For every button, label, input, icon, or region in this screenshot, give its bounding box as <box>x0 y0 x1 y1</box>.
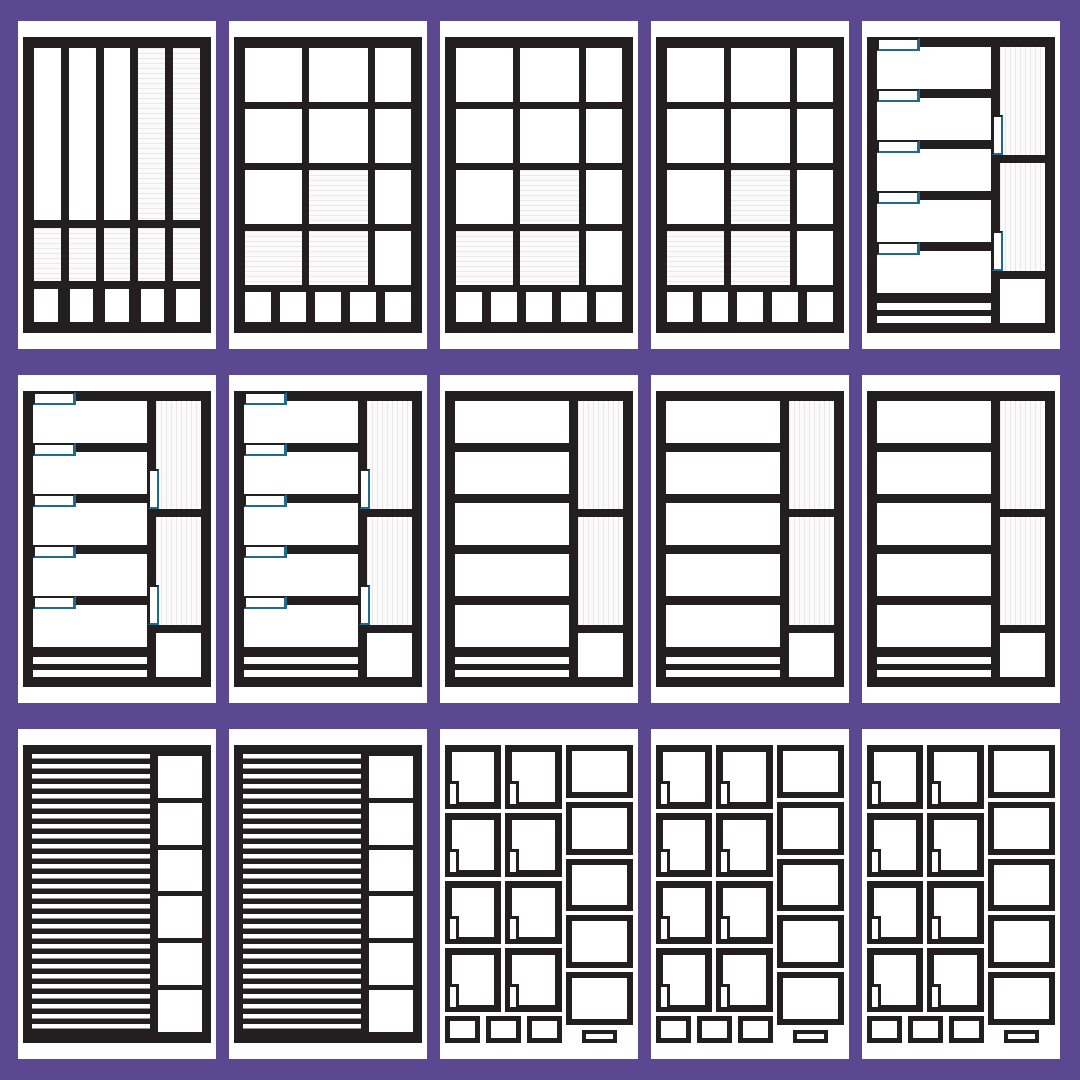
photo-corner-tab <box>447 781 459 807</box>
bottom-bars <box>666 657 780 677</box>
row-tab <box>877 89 920 102</box>
side-column <box>789 401 834 677</box>
page-template-striped-notes <box>23 745 211 1043</box>
mini-box <box>807 292 833 322</box>
planner-card-3-5 <box>862 729 1060 1059</box>
row-box <box>666 401 780 443</box>
grid-cell <box>309 109 368 163</box>
photo-box <box>867 881 923 945</box>
side-box <box>158 943 202 985</box>
footer-box <box>445 1016 480 1043</box>
photo-corner-tab <box>658 984 670 1010</box>
side-box <box>369 990 413 1032</box>
mini-box <box>456 292 482 322</box>
photo-side-box <box>566 915 633 968</box>
photo-footer-row <box>656 1016 773 1043</box>
side-box <box>369 756 413 798</box>
ruled-column-cell <box>173 48 200 220</box>
grid-cell <box>667 170 724 224</box>
grid-bottom-row <box>245 292 411 322</box>
photo-side-box <box>988 915 1055 968</box>
ruled-grid-cell <box>731 170 790 224</box>
row-box <box>666 605 780 647</box>
ruled-grid-cell <box>456 231 513 285</box>
side-panel <box>789 401 834 509</box>
row-box <box>244 401 358 443</box>
mini-box <box>737 292 763 322</box>
row-box <box>666 503 780 545</box>
photo-box <box>445 881 501 945</box>
columns-mid-row <box>34 228 200 281</box>
grid-bottom-row <box>456 292 622 322</box>
row-box <box>244 605 358 647</box>
grid-cell <box>309 48 368 102</box>
photo-column <box>867 745 923 1012</box>
bottom-bars <box>33 657 147 677</box>
photo-box <box>867 745 923 809</box>
ruled-mid-cell <box>173 228 200 281</box>
grid-cell <box>520 109 579 163</box>
photo-side-box <box>566 859 633 912</box>
row-box <box>666 452 780 494</box>
row-tab <box>877 242 920 255</box>
grid-cell <box>375 48 411 102</box>
grid-cell <box>586 109 622 163</box>
side-panel <box>1000 401 1045 509</box>
bottom-bar <box>244 657 358 664</box>
notes-side-column <box>158 754 202 1034</box>
grid-cell <box>245 170 302 224</box>
grid-cell <box>586 170 622 224</box>
footer-box <box>908 1016 943 1043</box>
side-column <box>578 401 623 677</box>
grid-cell <box>375 109 411 163</box>
row-box <box>33 503 147 545</box>
grid-cell <box>245 109 302 163</box>
label-bar <box>582 1030 617 1043</box>
rows-left-column <box>455 401 569 677</box>
footer-box <box>527 1016 562 1043</box>
row-box <box>877 452 991 494</box>
grid-cell <box>731 48 790 102</box>
row-box <box>877 503 991 545</box>
side-panel-tab <box>359 469 370 509</box>
row-box <box>666 554 780 596</box>
footer-box <box>867 1016 902 1043</box>
row-box <box>455 503 569 545</box>
photo-corner-tab <box>718 781 730 807</box>
planner-card-1-4 <box>651 21 849 349</box>
grid-cell <box>667 109 724 163</box>
planner-card-2-4 <box>651 375 849 703</box>
planner-card-2-2 <box>229 375 427 703</box>
mini-box <box>280 292 306 322</box>
photo-box <box>867 948 923 1012</box>
grid-cell <box>245 48 302 102</box>
ruled-grid-cell <box>520 170 579 224</box>
grid-cell <box>456 109 513 163</box>
row-box <box>877 401 991 443</box>
row-tab <box>244 392 287 405</box>
photo-corner-tab <box>447 916 459 942</box>
planner-card-1-5 <box>862 21 1060 349</box>
page-template-photo-grid <box>656 745 844 1043</box>
photo-corner-tab <box>658 916 670 942</box>
footer-box <box>656 1016 691 1043</box>
corner-box <box>367 633 412 677</box>
photo-footer-row <box>867 1016 984 1043</box>
mini-box <box>561 292 587 322</box>
photo-columns <box>656 745 773 1012</box>
photo-corner-tab <box>718 984 730 1010</box>
photo-box <box>867 813 923 877</box>
row-box <box>877 251 991 293</box>
mini-box <box>176 289 200 322</box>
row-box <box>455 401 569 443</box>
photo-side-box <box>777 915 844 968</box>
side-column <box>367 401 412 677</box>
side-panel <box>1000 163 1045 271</box>
side-panel <box>156 517 201 625</box>
bottom-bars <box>455 657 569 677</box>
page-template-plain-rows <box>867 391 1055 687</box>
photo-corner-tab <box>929 916 941 942</box>
row-box <box>877 98 991 140</box>
photo-box <box>656 948 712 1012</box>
ruled-mid-cell <box>138 228 165 281</box>
row-box <box>244 554 358 596</box>
photo-box <box>656 745 712 809</box>
side-panel <box>578 401 623 509</box>
grid-cell <box>586 48 622 102</box>
photo-corner-tab <box>658 781 670 807</box>
corner-box <box>1000 279 1045 323</box>
side-box <box>158 803 202 845</box>
corner-box <box>578 633 623 677</box>
photo-side-box <box>777 859 844 912</box>
page-template-photo-grid <box>867 745 1055 1043</box>
bottom-bar <box>666 657 780 664</box>
photo-box <box>927 881 983 945</box>
side-box <box>369 896 413 938</box>
bottom-bar <box>33 670 147 677</box>
photo-column <box>656 745 712 1012</box>
photo-columns <box>445 745 562 1012</box>
row-tab <box>877 140 920 153</box>
grid-cell <box>667 48 724 102</box>
poster-background <box>0 0 1080 1080</box>
photo-side-column <box>777 745 844 1043</box>
mini-box <box>350 292 376 322</box>
column-cell <box>104 48 131 220</box>
row-box <box>33 605 147 647</box>
side-panel-tab <box>992 115 1003 155</box>
side-box <box>158 990 202 1032</box>
label-bar <box>793 1030 828 1043</box>
mini-box <box>385 292 411 322</box>
photo-box <box>445 813 501 877</box>
grid-cell <box>456 48 513 102</box>
notes-ruled-area <box>243 754 361 1034</box>
footer-box <box>486 1016 521 1043</box>
mini-box <box>667 292 693 322</box>
photo-box <box>505 948 561 1012</box>
corner-box <box>789 633 834 677</box>
page-template-tabbed-rows <box>867 37 1055 333</box>
page-template-grid <box>234 37 422 333</box>
side-panel <box>367 401 412 509</box>
ruled-grid-cell <box>520 231 579 285</box>
photo-box <box>445 948 501 1012</box>
row-tab <box>244 596 287 609</box>
mini-box <box>70 289 94 322</box>
ruled-grid-cell <box>731 231 790 285</box>
bottom-bar <box>877 670 991 677</box>
grid-cell <box>797 109 833 163</box>
photo-side-box <box>988 972 1055 1025</box>
photo-main-area <box>445 745 562 1043</box>
row-box <box>877 149 991 191</box>
row-tab <box>244 494 287 507</box>
photo-column <box>927 745 983 1012</box>
page-template-striped-notes <box>234 745 422 1043</box>
bottom-bar <box>455 670 569 677</box>
grid-cell <box>520 48 579 102</box>
corner-box <box>156 633 201 677</box>
photo-corner-tab <box>929 984 941 1010</box>
grid-cell <box>375 170 411 224</box>
page-template-tabbed-rows <box>234 391 422 687</box>
planner-card-1-2 <box>229 21 427 349</box>
photo-box <box>716 948 772 1012</box>
side-column <box>156 401 201 677</box>
ruled-mid-cell <box>104 228 131 281</box>
planner-card-1-1 <box>18 21 216 349</box>
bottom-bars <box>877 657 991 677</box>
page-template-photo-grid <box>445 745 633 1043</box>
notes-side-column <box>369 754 413 1034</box>
row-box <box>33 452 147 494</box>
column-cell <box>34 48 61 220</box>
side-panel-tab <box>359 585 370 625</box>
planner-templates-grid <box>0 0 1080 1080</box>
side-panel-tab <box>148 469 159 509</box>
photo-side-box <box>777 972 844 1025</box>
photo-box <box>716 745 772 809</box>
rows-left-column <box>666 401 780 677</box>
side-box <box>158 756 202 798</box>
rows-left-column <box>877 47 991 323</box>
photo-box <box>505 745 561 809</box>
ruled-grid-cell <box>309 170 368 224</box>
page-template-grid <box>445 37 633 333</box>
grid-bottom-row <box>667 292 833 322</box>
photo-side-box <box>988 745 1055 798</box>
row-tab <box>33 392 76 405</box>
photo-corner-tab <box>507 781 519 807</box>
grid-cell <box>797 231 833 285</box>
side-box <box>369 803 413 845</box>
row-tab <box>33 596 76 609</box>
row-box <box>877 200 991 242</box>
row-box <box>455 605 569 647</box>
side-column <box>1000 401 1045 677</box>
columns-top-row <box>34 48 200 220</box>
planner-card-3-3 <box>440 729 638 1059</box>
row-tab <box>33 545 76 558</box>
photo-column <box>505 745 561 1012</box>
photo-box <box>505 813 561 877</box>
grid-cell <box>797 170 833 224</box>
planner-card-2-5 <box>862 375 1060 703</box>
bottom-bar <box>455 657 569 664</box>
photo-corner-tab <box>507 849 519 875</box>
ruled-mid-cell <box>69 228 96 281</box>
columns-bottom-row <box>34 289 200 322</box>
photo-side-box <box>988 802 1055 855</box>
side-panel <box>1000 47 1045 155</box>
row-tab <box>33 443 76 456</box>
photo-box <box>656 881 712 945</box>
column-cell <box>69 48 96 220</box>
bottom-bar <box>244 670 358 677</box>
rows-left-column <box>33 401 147 677</box>
footer-box <box>949 1016 984 1043</box>
side-box <box>158 896 202 938</box>
photo-corner-tab <box>658 849 670 875</box>
row-box <box>455 452 569 494</box>
photo-corner-tab <box>718 916 730 942</box>
planner-card-3-1 <box>18 729 216 1059</box>
row-tab <box>244 443 287 456</box>
side-box <box>369 943 413 985</box>
row-tab <box>877 38 920 51</box>
row-box <box>455 554 569 596</box>
footer-box <box>697 1016 732 1043</box>
side-panel <box>1000 517 1045 625</box>
page-template-tabbed-rows <box>23 391 211 687</box>
side-column <box>1000 47 1045 323</box>
photo-side-box <box>566 745 633 798</box>
planner-card-2-3 <box>440 375 638 703</box>
corner-box <box>1000 633 1045 677</box>
mini-box <box>315 292 341 322</box>
bottom-bar <box>877 657 991 664</box>
side-box <box>158 850 202 892</box>
photo-corner-tab <box>869 916 881 942</box>
ruled-column-cell <box>138 48 165 220</box>
photo-corner-tab <box>869 781 881 807</box>
planner-card-3-2 <box>229 729 427 1059</box>
photo-box <box>716 813 772 877</box>
side-panel <box>156 401 201 509</box>
photo-column <box>445 745 501 1012</box>
photo-box <box>927 948 983 1012</box>
photo-corner-tab <box>507 984 519 1010</box>
row-box <box>244 503 358 545</box>
page-template-columns <box>23 37 211 333</box>
mini-box <box>526 292 552 322</box>
photo-box <box>927 813 983 877</box>
grid-cell <box>731 109 790 163</box>
side-panel-tab <box>992 231 1003 271</box>
photo-box <box>656 813 712 877</box>
grid-cell <box>456 170 513 224</box>
row-box <box>33 401 147 443</box>
photo-corner-tab <box>718 849 730 875</box>
mini-box <box>491 292 517 322</box>
photo-corner-tab <box>929 781 941 807</box>
photo-main-area <box>656 745 773 1043</box>
mini-box <box>141 289 165 322</box>
ruled-mid-cell <box>34 228 61 281</box>
ruled-grid-cell <box>667 231 724 285</box>
page-template-plain-rows <box>656 391 844 687</box>
planner-card-3-4 <box>651 729 849 1059</box>
mini-box <box>34 289 58 322</box>
grid-cell <box>797 48 833 102</box>
photo-corner-tab <box>507 916 519 942</box>
grid-cell <box>375 231 411 285</box>
rows-left-column <box>877 401 991 677</box>
bottom-bar <box>33 657 147 664</box>
notes-ruled-area <box>32 754 150 1034</box>
photo-side-box <box>566 802 633 855</box>
grid-cell <box>586 231 622 285</box>
side-panel <box>367 517 412 625</box>
photo-side-box <box>566 972 633 1025</box>
label-bar <box>1004 1030 1039 1043</box>
photo-box <box>927 745 983 809</box>
row-box <box>877 554 991 596</box>
mini-box <box>772 292 798 322</box>
planner-card-2-1 <box>18 375 216 703</box>
photo-box <box>445 745 501 809</box>
mini-box <box>245 292 271 322</box>
photo-box <box>716 881 772 945</box>
footer-box <box>738 1016 773 1043</box>
photo-corner-tab <box>869 984 881 1010</box>
photo-side-column <box>566 745 633 1043</box>
bottom-bar <box>666 670 780 677</box>
rows-left-column <box>244 401 358 677</box>
photo-side-column <box>988 745 1055 1043</box>
photo-side-box <box>988 859 1055 912</box>
bottom-bars <box>877 303 991 323</box>
mini-box <box>702 292 728 322</box>
ruled-grid-cell <box>245 231 302 285</box>
photo-columns <box>867 745 984 1012</box>
row-tab <box>244 545 287 558</box>
bottom-bars <box>244 657 358 677</box>
bottom-bar <box>877 303 991 310</box>
row-box <box>877 605 991 647</box>
photo-corner-tab <box>929 849 941 875</box>
side-box <box>369 850 413 892</box>
mini-box <box>105 289 129 322</box>
row-box <box>877 47 991 89</box>
ruled-grid-cell <box>309 231 368 285</box>
photo-side-box <box>777 802 844 855</box>
side-panel-tab <box>148 585 159 625</box>
photo-box <box>505 881 561 945</box>
row-box <box>33 554 147 596</box>
planner-card-1-3 <box>440 21 638 349</box>
row-box <box>244 452 358 494</box>
page-template-plain-rows <box>445 391 633 687</box>
row-tab <box>33 494 76 507</box>
row-tab <box>877 191 920 204</box>
